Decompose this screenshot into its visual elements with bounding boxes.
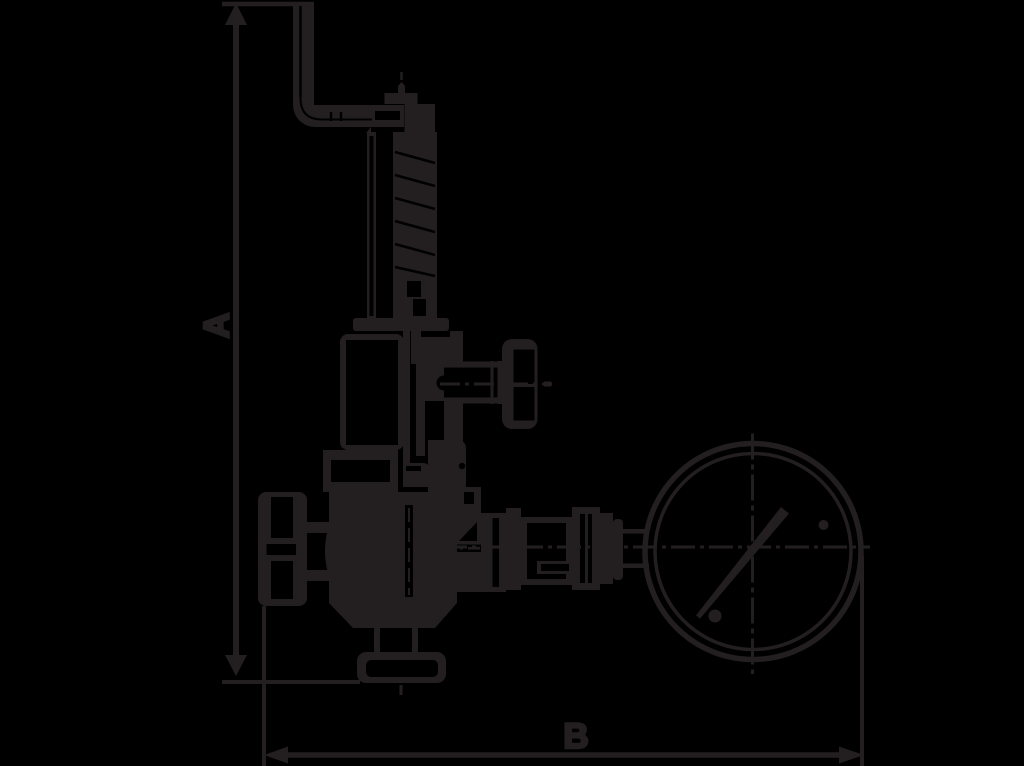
svg-text:A: A [198,313,237,338]
svg-text:B: B [563,717,588,756]
